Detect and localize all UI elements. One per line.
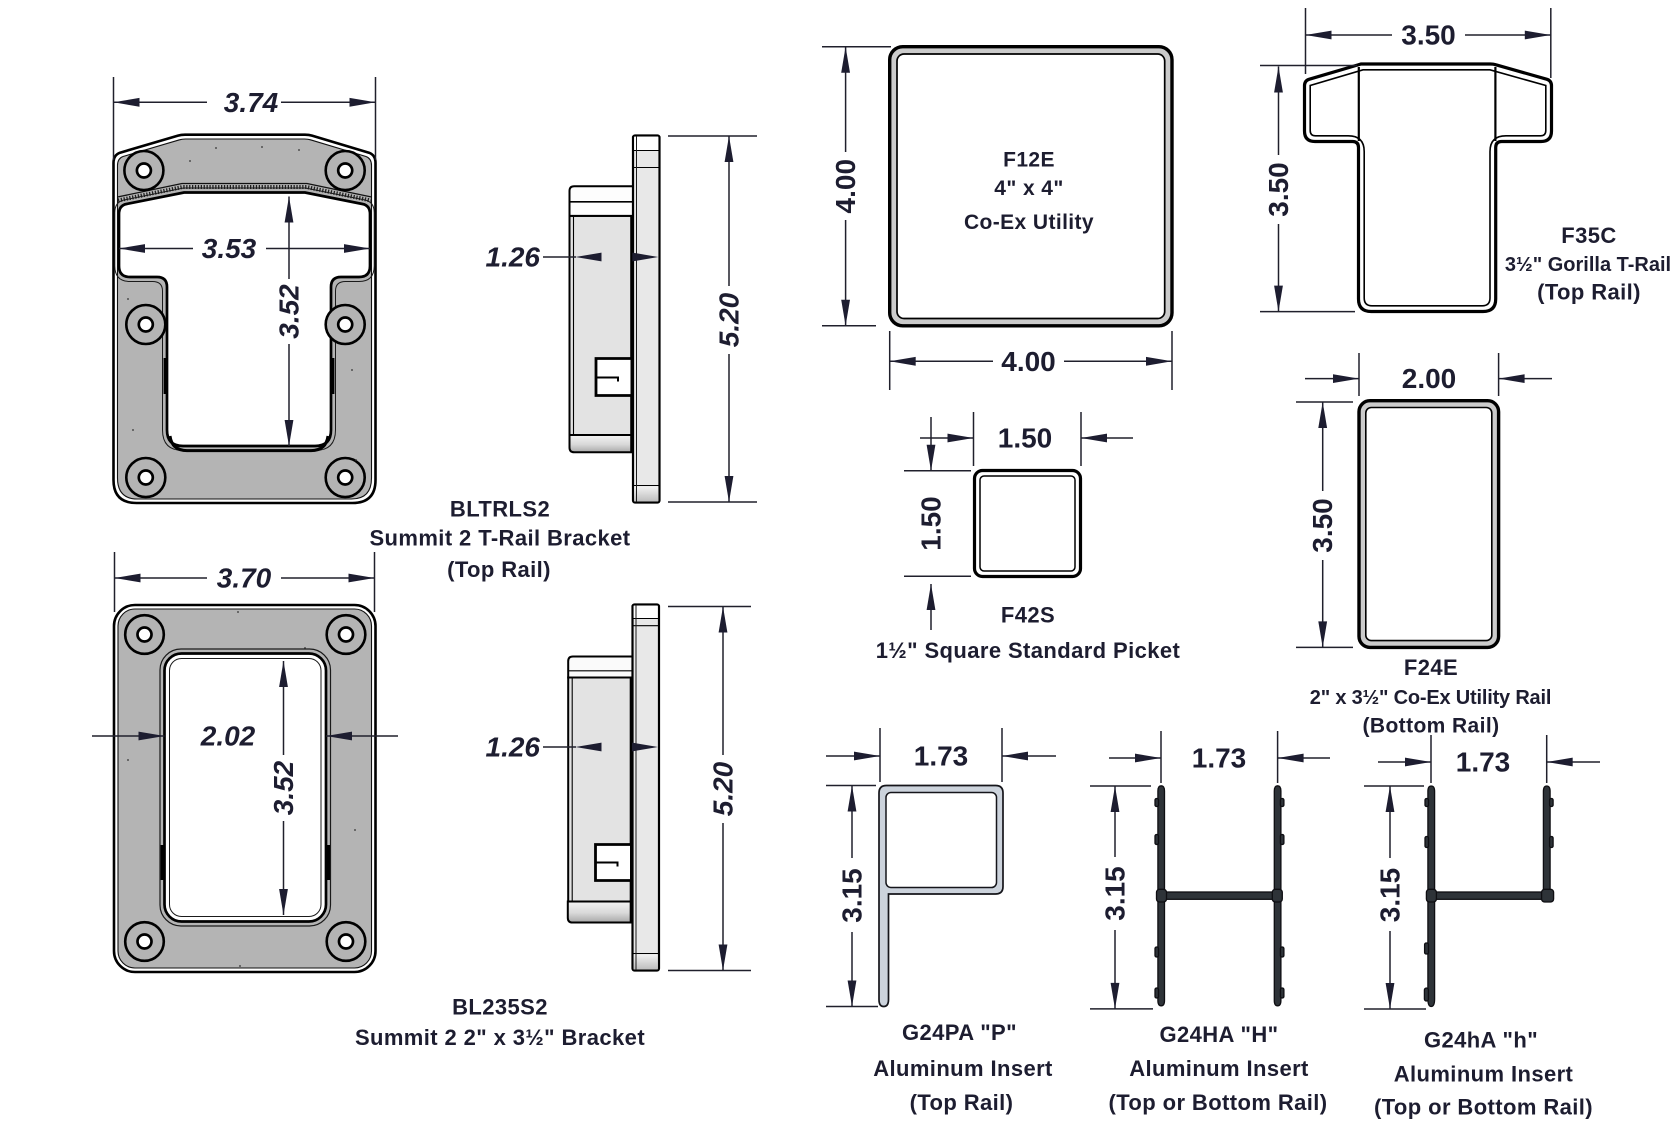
svg-text:(Top Rail): (Top Rail) <box>1537 280 1641 305</box>
svg-text:3.15: 3.15 <box>1375 868 1406 923</box>
svg-text:3½" Gorilla T-Rail: 3½" Gorilla T-Rail <box>1505 254 1671 276</box>
svg-text:1.50: 1.50 <box>916 496 947 551</box>
svg-text:2.00: 2.00 <box>1402 363 1457 394</box>
svg-text:(Top Rail): (Top Rail) <box>447 557 551 582</box>
svg-text:G24HA "H": G24HA "H" <box>1159 1022 1278 1047</box>
svg-text:5.20: 5.20 <box>714 292 745 347</box>
svg-text:1.73: 1.73 <box>1456 747 1511 778</box>
svg-text:3.15: 3.15 <box>837 868 868 923</box>
svg-text:1.73: 1.73 <box>1192 743 1247 774</box>
svg-text:F42S: F42S <box>1001 603 1055 628</box>
svg-text:3.50: 3.50 <box>1263 162 1294 217</box>
svg-text:1½" Square Standard Picket: 1½" Square Standard Picket <box>876 638 1181 663</box>
svg-text:(Top Rail): (Top Rail) <box>910 1090 1014 1115</box>
svg-text:BLTRLS2: BLTRLS2 <box>450 497 550 522</box>
svg-text:G24PA "P": G24PA "P" <box>902 1020 1017 1045</box>
svg-text:2.02: 2.02 <box>200 721 256 752</box>
svg-text:(Bottom Rail): (Bottom Rail) <box>1362 715 1499 738</box>
svg-text:Aluminum Insert: Aluminum Insert <box>1129 1056 1309 1081</box>
svg-text:3.74: 3.74 <box>224 87 279 118</box>
svg-text:3.50: 3.50 <box>1401 20 1456 51</box>
svg-text:F12E: F12E <box>1003 149 1055 172</box>
svg-text:F35C: F35C <box>1561 223 1616 248</box>
svg-text:3.50: 3.50 <box>1307 498 1338 553</box>
svg-text:5.20: 5.20 <box>708 761 739 816</box>
svg-text:3.70: 3.70 <box>217 563 272 594</box>
svg-text:2" x 3½" Co-Ex Utility Rail: 2" x 3½" Co-Ex Utility Rail <box>1310 687 1551 709</box>
svg-text:4" x 4": 4" x 4" <box>994 177 1063 200</box>
svg-text:4.00: 4.00 <box>1001 346 1056 377</box>
svg-text:3.15: 3.15 <box>1100 866 1131 921</box>
svg-text:1.50: 1.50 <box>998 423 1053 454</box>
svg-text:1.26: 1.26 <box>486 242 541 273</box>
svg-text:Summit 2 2" x 3½" Bracket: Summit 2 2" x 3½" Bracket <box>355 1025 645 1050</box>
svg-text:Co-Ex Utility: Co-Ex Utility <box>964 211 1094 234</box>
svg-text:F24E: F24E <box>1404 655 1458 680</box>
svg-text:(Top or Bottom Rail): (Top or Bottom Rail) <box>1109 1090 1328 1115</box>
svg-text:BL235S2: BL235S2 <box>452 995 548 1020</box>
svg-text:1.73: 1.73 <box>914 741 969 772</box>
svg-text:4.00: 4.00 <box>830 159 861 214</box>
svg-text:(Top or Bottom Rail): (Top or Bottom Rail) <box>1374 1095 1593 1120</box>
svg-text:Summit 2 T-Rail Bracket: Summit 2 T-Rail Bracket <box>369 526 630 551</box>
svg-text:G24hA "h": G24hA "h" <box>1424 1028 1538 1053</box>
svg-text:3.52: 3.52 <box>274 284 305 339</box>
svg-text:1.26: 1.26 <box>486 732 541 763</box>
svg-text:3.53: 3.53 <box>202 233 257 264</box>
svg-text:3.52: 3.52 <box>268 760 299 815</box>
svg-text:Aluminum Insert: Aluminum Insert <box>1394 1062 1574 1087</box>
svg-text:Aluminum Insert: Aluminum Insert <box>873 1056 1053 1081</box>
